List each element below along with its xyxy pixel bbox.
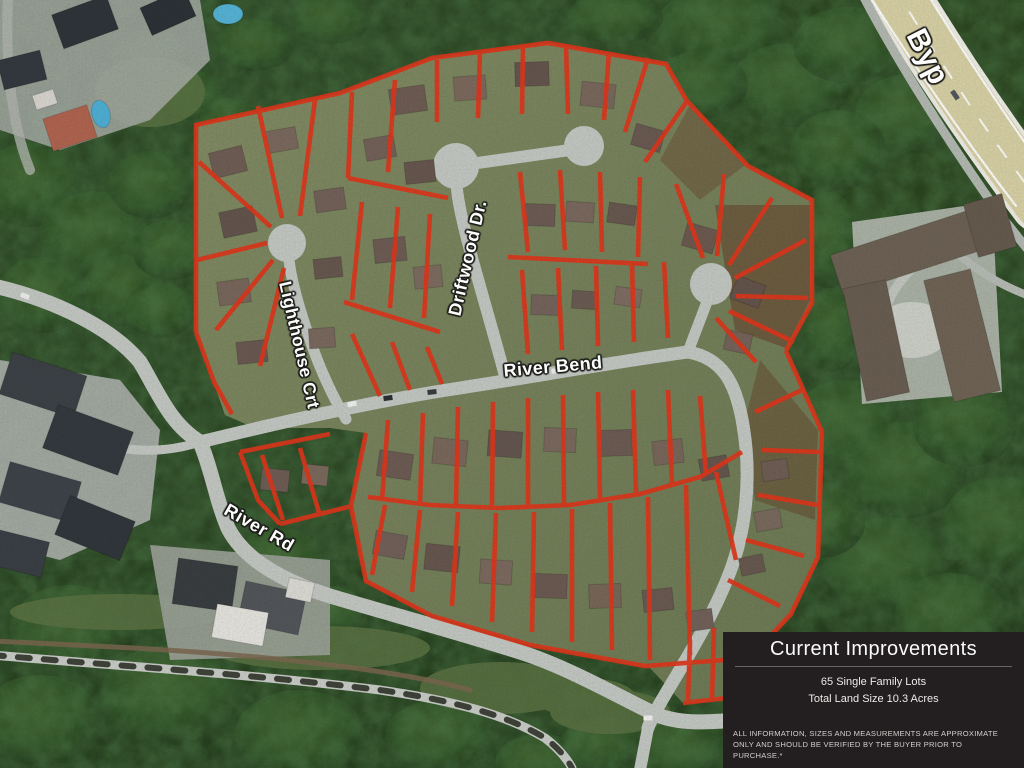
info-panel-divider: [735, 666, 1012, 667]
info-panel-title: Current Improvements: [733, 638, 1014, 661]
info-panel: Current Improvements 65 Single Family Lo…: [723, 632, 1024, 768]
info-panel-land-size: Total Land Size 10.3 Acres: [733, 691, 1014, 708]
info-panel-lot-count: 65 Single Family Lots: [733, 674, 1014, 691]
aerial-map-view: Driftwood Dr. Lighthouse Crt River Bend …: [0, 0, 1024, 768]
info-panel-disclaimer: ALL INFORMATION, SIZES AND MEASUREMENTS …: [733, 728, 1014, 761]
